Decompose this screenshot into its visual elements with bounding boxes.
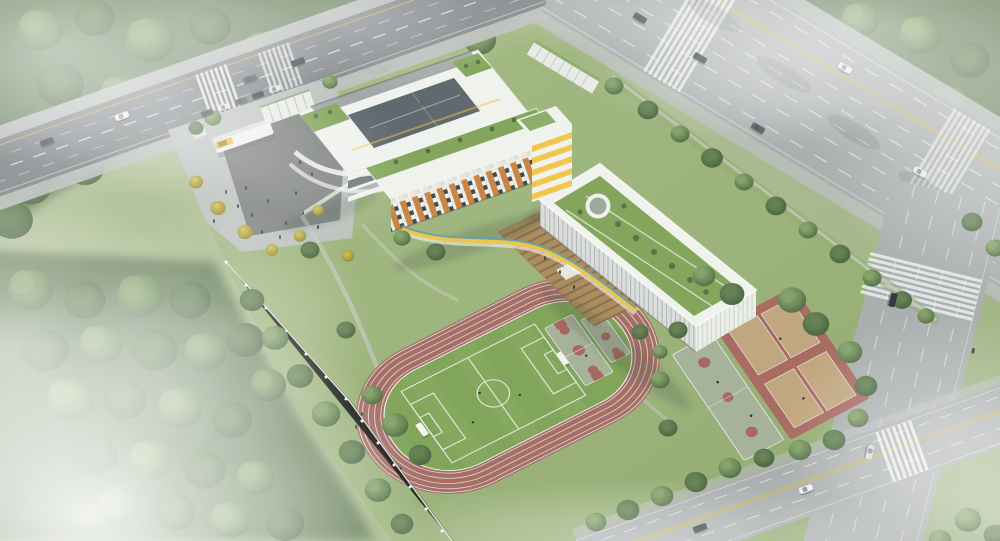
- fog-overlay: [0, 0, 1000, 541]
- campus-aerial-rendering: [0, 0, 1000, 541]
- aerial-render-canvas: Aerial bird's-eye architectural renderin…: [0, 0, 1000, 541]
